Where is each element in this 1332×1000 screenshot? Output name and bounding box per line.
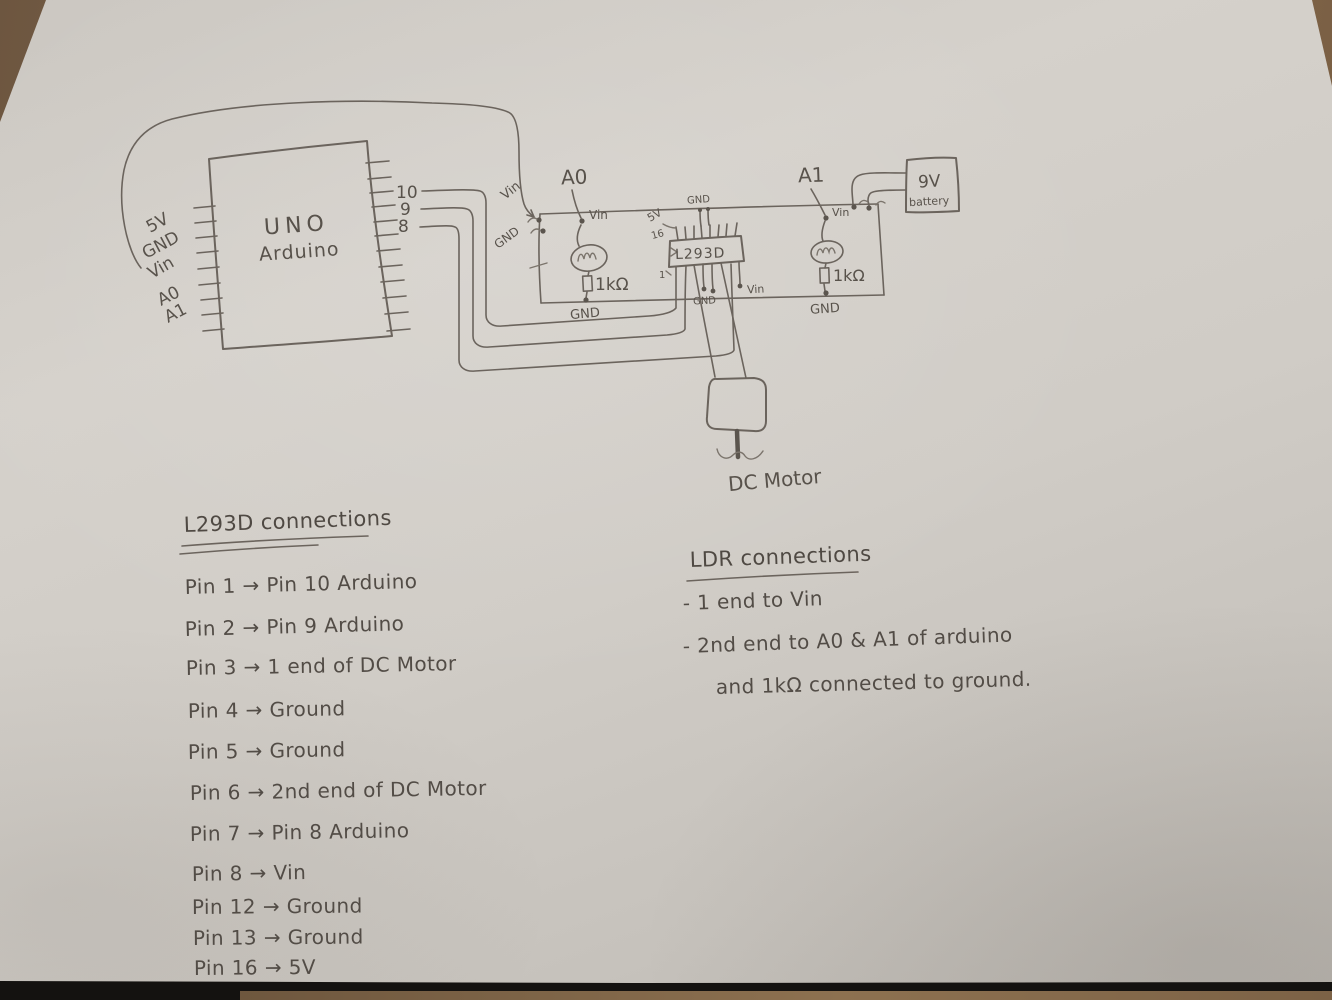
arduino-name-line2: Arduino: [258, 238, 340, 266]
l293d-chip: L293D GND 5V 16 1 GND Vin: [645, 194, 765, 307]
battery-wire-1: [852, 173, 906, 205]
a0-vin-label: Vin: [589, 208, 608, 222]
a0-resistor-label: 1kΩ: [595, 275, 629, 295]
a1-resistor-label: 1kΩ: [833, 266, 865, 285]
l293d-bottom-gnd-label: GND: [693, 295, 717, 307]
l293d-note-item: Pin 7 → Pin 8 Arduino: [190, 818, 410, 846]
a0-vin-dot: [579, 218, 584, 223]
l293d-note-item: Pin 13 → Ground: [193, 925, 364, 950]
bus-gnd-junction-dot: [540, 228, 545, 233]
l293d-pin16-label: 16: [650, 228, 665, 242]
l293d-pin1-tick: [666, 271, 671, 275]
l293d-bottom-gnd-dot-2: [711, 289, 716, 294]
battery-label-line2: battery: [909, 194, 950, 209]
desk-edge: [240, 991, 1332, 1000]
battery-junction-dot-1: [851, 204, 856, 209]
l293d-label: L293D: [675, 245, 726, 263]
l293d-bottom-gnd-dot-1: [702, 287, 707, 292]
a0-wire-resistor-gnd: [586, 292, 587, 298]
paper-sheet: UNO Arduino 5V GND Vin A0 A1 10 9 8: [0, 0, 1332, 1000]
notes-l293d: L293D connections Pin 1 → Pin 10 Arduino…: [180, 506, 487, 980]
l293d-note-item: Pin 6 → 2nd end of DC Motor: [190, 776, 488, 805]
a0-ldr-symbol: [569, 243, 608, 274]
ldr-circuit-a0: A0 Vin 1kΩ GND: [561, 165, 629, 324]
l293d-supply-label: 5V: [645, 206, 664, 225]
l293d-note-item: Pin 5 → Ground: [188, 737, 346, 764]
motor-wire-right: [721, 263, 746, 378]
ldr-notes-underline: [687, 572, 858, 581]
battery-wire-2: [868, 190, 906, 205]
a1-ldr-squiggle: [817, 248, 835, 255]
l293d-top-gnd-dot-2: [706, 207, 710, 211]
l293d-note-item: Pin 16 → 5V: [194, 955, 316, 980]
a0-wire-to-ldr: [577, 225, 581, 246]
a0-label: A0: [561, 165, 588, 190]
motor-label: DC Motor: [727, 464, 823, 496]
l293d-notes-heading: L293D connections: [183, 506, 392, 537]
l293d-note-item: Pin 8 → Vin: [192, 860, 307, 886]
l293d-note-item: Pin 1 → Pin 10 Arduino: [185, 569, 418, 599]
arduino-name-line1: UNO: [263, 211, 329, 240]
ldr-note-item: - 2nd end to A0 & A1 of arduino: [682, 622, 1013, 658]
l293d-note-item: Pin 3 → 1 end of DC Motor: [186, 651, 457, 680]
a0-gnd-dot: [583, 297, 588, 302]
battery-junction-dot-2: [866, 205, 871, 210]
l293d-gnd-risers: [700, 209, 709, 226]
a1-gnd-dot: [823, 290, 828, 295]
a1-label: A1: [798, 163, 825, 188]
l293d-note-item: Pin 2 → Pin 9 Arduino: [185, 611, 405, 641]
bus-vin-junction-dot: [536, 217, 541, 222]
notes-ldr: LDR connections - 1 end to Vin - 2nd end…: [682, 542, 1031, 699]
l293d-vin-dot: [738, 284, 743, 289]
bus-left-line: [539, 214, 541, 303]
a0-ldr-squiggle: [578, 253, 596, 261]
a1-vin-dot: [823, 215, 828, 220]
a0-wire-down: [572, 190, 581, 218]
wire-pin9-to-chip-pin2: [421, 208, 686, 347]
bus-gnd-text: GND: [492, 224, 522, 251]
a1-resistor-symbol: [820, 268, 830, 283]
a1-wire-to-ldr: [822, 221, 825, 241]
motor-body: [707, 378, 766, 431]
l293d-notes-underline: [180, 536, 368, 554]
l293d-top-gnd-dot-1: [698, 208, 702, 212]
a1-wire-down: [811, 189, 825, 215]
ldr-circuit-a1: A1 Vin 1kΩ GND: [798, 163, 865, 318]
a1-wire-resistor-gnd: [824, 284, 825, 291]
wires-arduino-to-l293d: [420, 190, 734, 371]
battery-label-line1: 9V: [918, 171, 942, 192]
a0-resistor-symbol: [583, 276, 593, 291]
a1-ldr-symbol: [810, 239, 844, 264]
l293d-top-gnd-label: GND: [687, 194, 711, 207]
l293d-vin-label: Vin: [747, 283, 765, 297]
l293d-note-item: Pin 4 → Ground: [188, 696, 346, 723]
photo-of-sketch: UNO Arduino 5V GND Vin A0 A1 10 9 8: [0, 0, 1332, 1000]
ldr-notes-heading: LDR connections: [689, 542, 872, 572]
l293d-pin1-label: 1: [659, 270, 665, 281]
l293d-note-item: Pin 12 → Ground: [192, 894, 363, 919]
l293d-bottom-gnd-stubs: [703, 264, 713, 289]
l293d-supply-link: [663, 224, 676, 228]
arduino-pin-label-8: 8: [398, 217, 409, 237]
bus-right-line: [878, 204, 884, 295]
a1-vin-label: Vin: [832, 206, 849, 219]
a1-gnd-label: GND: [810, 301, 841, 318]
arduino-board: UNO Arduino 5V GND Vin A0 A1 10 9 8: [139, 141, 418, 349]
l293d-vin-stub: [739, 262, 740, 284]
ldr-note-item: - 1 end to Vin: [682, 586, 823, 615]
ldr-note-item: and 1kΩ connected to ground.: [716, 667, 1032, 699]
circuit-sketch: UNO Arduino 5V GND Vin A0 A1 10 9 8: [0, 0, 1332, 1000]
